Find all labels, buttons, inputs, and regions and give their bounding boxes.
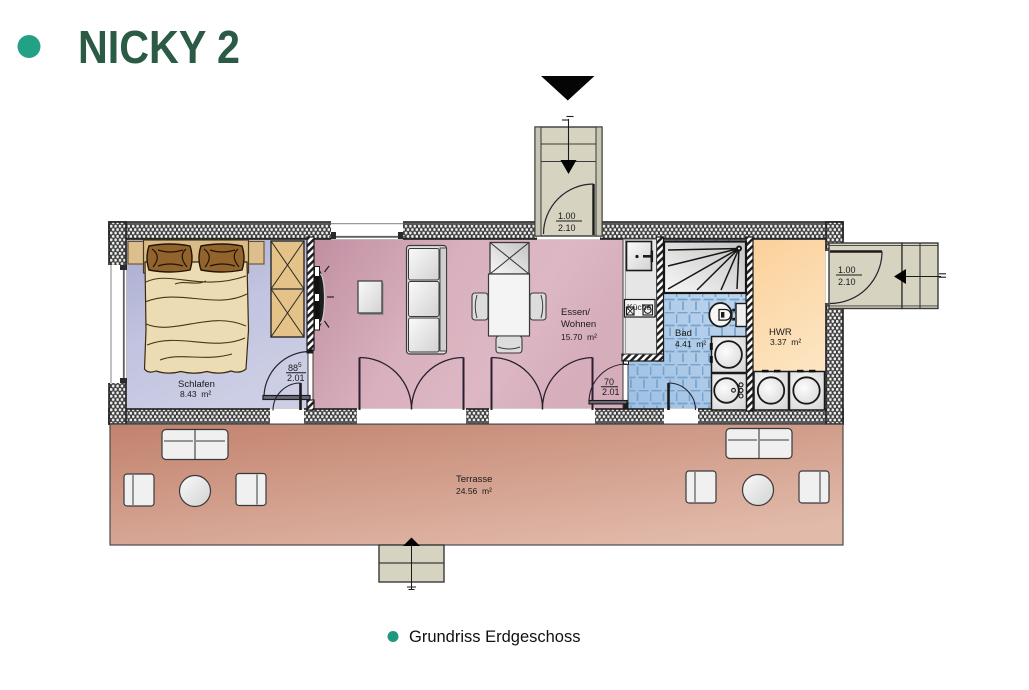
- svg-text:4.41 m²: 4.41 m²: [675, 339, 706, 349]
- svg-text:2.10: 2.10: [838, 277, 856, 287]
- svg-text:Wohnen: Wohnen: [561, 319, 596, 330]
- svg-text:Grundriss Erdgeschoss: Grundriss Erdgeschoss: [409, 628, 581, 646]
- svg-text:1.00: 1.00: [558, 211, 576, 221]
- svg-text:24.56 m²: 24.56 m²: [456, 486, 492, 496]
- svg-text:Essen/: Essen/: [561, 307, 590, 318]
- svg-text:1.00: 1.00: [838, 265, 856, 275]
- svg-text:5: 5: [298, 362, 302, 369]
- svg-text:3.37 m²: 3.37 m²: [770, 337, 801, 347]
- svg-text:Küche: Küche: [627, 302, 651, 312]
- svg-text:88: 88: [288, 363, 298, 373]
- svg-text:70: 70: [604, 377, 614, 387]
- svg-text:2.10: 2.10: [558, 223, 576, 233]
- svg-text:8.43 m²: 8.43 m²: [180, 389, 211, 399]
- svg-text:15.70 m²: 15.70 m²: [561, 332, 597, 342]
- svg-text:Terrasse: Terrasse: [456, 474, 492, 485]
- svg-text:Bad: Bad: [675, 328, 692, 339]
- svg-text:2.01: 2.01: [602, 387, 620, 397]
- svg-text:NICKY 2: NICKY 2: [78, 21, 240, 73]
- svg-text:2.01: 2.01: [287, 373, 305, 383]
